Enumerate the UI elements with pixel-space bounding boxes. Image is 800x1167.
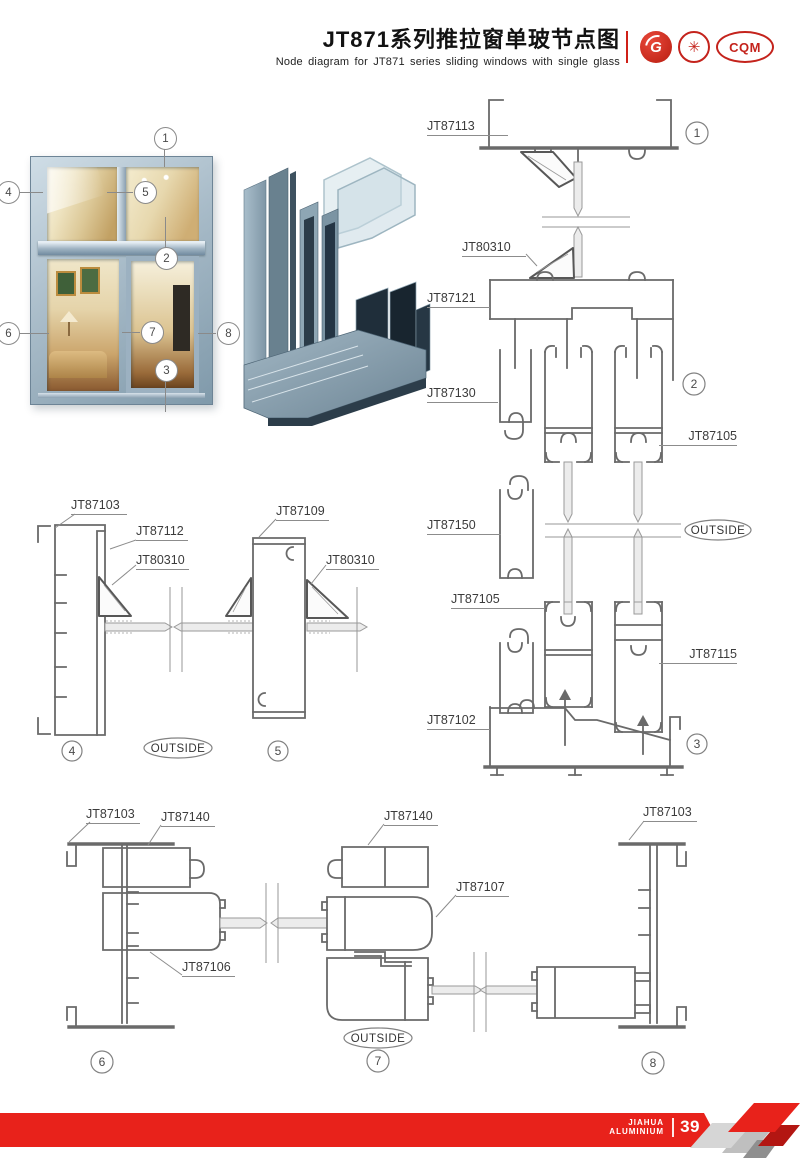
photo-doorway bbox=[173, 285, 190, 351]
profile-jt87103-jamb bbox=[38, 525, 105, 735]
callout-7: 7 bbox=[141, 321, 164, 344]
label-jt87106: JT87106 bbox=[182, 960, 235, 977]
header: JT871系列推拉窗单玻节点图 Node diagram for JT871 s… bbox=[250, 26, 620, 68]
footer-separator bbox=[672, 1118, 674, 1137]
glass bbox=[105, 623, 172, 631]
svg-text:8: 8 bbox=[650, 1056, 657, 1070]
profile-jt87105-top bbox=[615, 346, 662, 462]
label-jt87103: JT87103 bbox=[643, 805, 697, 822]
footer-page-number: 39 bbox=[680, 1117, 700, 1137]
glass bbox=[574, 227, 582, 277]
glass bbox=[634, 602, 642, 614]
svg-text:1: 1 bbox=[694, 126, 701, 140]
profile-jt87103-right bbox=[620, 844, 686, 1027]
photo-sofa bbox=[49, 351, 107, 378]
profile-jt87109-mullion bbox=[253, 538, 305, 718]
glass bbox=[271, 918, 327, 928]
callout-line-1 bbox=[164, 149, 165, 167]
profile-3d-render bbox=[238, 150, 433, 435]
callout-6: 6 bbox=[0, 322, 20, 345]
svg-text:6: 6 bbox=[99, 1055, 106, 1069]
photo-pane-bottom-left bbox=[47, 259, 119, 391]
profile-jt87121 bbox=[490, 272, 673, 380]
label-jt87130: JT87130 bbox=[427, 386, 498, 403]
label-jt87140: JT87140 bbox=[384, 809, 438, 826]
label-jt80310: JT80310 bbox=[136, 553, 189, 570]
label-jt87102: JT87102 bbox=[427, 713, 490, 730]
callout-line-6 bbox=[18, 333, 49, 334]
label-jt87112: JT87112 bbox=[136, 524, 188, 541]
glass bbox=[634, 462, 642, 522]
label-jt87105: JT87105 bbox=[659, 429, 737, 446]
svg-text:OUTSIDE: OUTSIDE bbox=[691, 525, 746, 537]
label-jt87140: JT87140 bbox=[161, 810, 215, 827]
glass bbox=[480, 986, 537, 994]
callout-1: 1 bbox=[154, 127, 177, 150]
callout-line-4 bbox=[18, 192, 43, 193]
photo-pane-top-right bbox=[126, 167, 199, 241]
svg-text:5: 5 bbox=[275, 744, 282, 758]
photo-transom bbox=[38, 241, 205, 255]
callout-4: 4 bbox=[0, 181, 20, 204]
gasket-jt80310 bbox=[226, 578, 251, 616]
profile-jt87107 bbox=[322, 897, 433, 1020]
svg-text:3: 3 bbox=[694, 737, 701, 751]
footer-text: JIAHUA ALUMINIUM 39 bbox=[0, 1117, 700, 1137]
jamb-mullion-section-drawing: 4 5 OUTSIDE bbox=[30, 495, 420, 770]
label-jt87150: JT87150 bbox=[427, 518, 501, 535]
glass bbox=[564, 529, 572, 602]
label-jt87103: JT87103 bbox=[86, 807, 140, 824]
label-jt87107: JT87107 bbox=[456, 880, 509, 897]
label-jt87109: JT87109 bbox=[276, 504, 329, 521]
glass bbox=[574, 162, 582, 216]
callout-5: 5 bbox=[134, 181, 157, 204]
callout-2: 2 bbox=[155, 247, 178, 270]
glass bbox=[564, 602, 572, 614]
profile-jt87115 bbox=[615, 602, 662, 732]
cqm-logo: CQM bbox=[716, 31, 774, 63]
profile-jt87102 bbox=[485, 698, 682, 775]
header-divider bbox=[626, 31, 628, 63]
photo-bottom-rail bbox=[38, 393, 205, 398]
callout-line-8 bbox=[198, 333, 216, 334]
photo-picture-frame bbox=[80, 267, 100, 294]
glass bbox=[307, 623, 367, 631]
photo-picture-frame bbox=[56, 271, 76, 296]
photo-lamp-stand bbox=[68, 322, 70, 336]
callout-8: 8 bbox=[217, 322, 240, 345]
glass bbox=[174, 623, 253, 631]
svg-text:7: 7 bbox=[375, 1054, 382, 1068]
photo-pane-top-left bbox=[47, 167, 117, 241]
svg-text:2: 2 bbox=[691, 377, 698, 391]
profile-jt87105-bottom bbox=[545, 602, 592, 707]
profile-jt87113 bbox=[481, 100, 677, 162]
label-jt80310: JT80310 bbox=[326, 553, 379, 570]
sash-meeting-section-drawing: 6 7 8 OUTSIDE bbox=[55, 800, 800, 1075]
certification-logo-icon: G bbox=[640, 31, 672, 63]
window-photo bbox=[30, 156, 213, 405]
catalog-page: JT871系列推拉窗单玻节点图 Node diagram for JT871 s… bbox=[0, 0, 800, 1167]
callout-line-7 bbox=[122, 332, 140, 333]
footer-brand-line1: JIAHUA bbox=[609, 1118, 664, 1127]
label-jt87113: JT87113 bbox=[427, 119, 508, 136]
profile-sash-right bbox=[532, 967, 650, 1018]
footer-brand-line2: ALUMINIUM bbox=[609, 1127, 664, 1136]
label-jt80310: JT80310 bbox=[462, 240, 526, 257]
callout-line-5 bbox=[107, 192, 133, 193]
callout-3: 3 bbox=[155, 359, 178, 382]
callout-line-2 bbox=[165, 217, 166, 248]
svg-text:4: 4 bbox=[69, 744, 76, 758]
photo-lamp bbox=[60, 311, 78, 322]
profile-jt87140-left bbox=[103, 848, 204, 887]
glass bbox=[634, 529, 642, 602]
gasket-jt80310 bbox=[307, 580, 348, 618]
callout-line-3 bbox=[165, 381, 166, 412]
svg-text:OUTSIDE: OUTSIDE bbox=[151, 743, 206, 755]
profile-jt87150 bbox=[500, 476, 533, 578]
label-jt87121: JT87121 bbox=[427, 291, 490, 308]
label-jt87115: JT87115 bbox=[659, 647, 737, 664]
label-jt87105: JT87105 bbox=[451, 592, 545, 609]
glass bbox=[564, 462, 572, 522]
profile-sash-top-left bbox=[545, 346, 592, 462]
svg-text:OUTSIDE: OUTSIDE bbox=[351, 1033, 406, 1045]
page-title: JT871系列推拉窗单玻节点图 bbox=[250, 26, 620, 54]
vertical-section-drawing: 1 2 3 OUTSIDE bbox=[425, 90, 800, 785]
profile-jt87140-mid bbox=[328, 847, 428, 887]
photo-top-mullion bbox=[117, 167, 126, 241]
profile-jt87103-left bbox=[67, 844, 173, 1027]
label-jt87103: JT87103 bbox=[71, 498, 127, 515]
page-subtitle: Node diagram for JT871 series sliding wi… bbox=[250, 56, 620, 68]
emblem-logo-icon: ✳ bbox=[678, 31, 710, 63]
glass bbox=[220, 918, 267, 928]
